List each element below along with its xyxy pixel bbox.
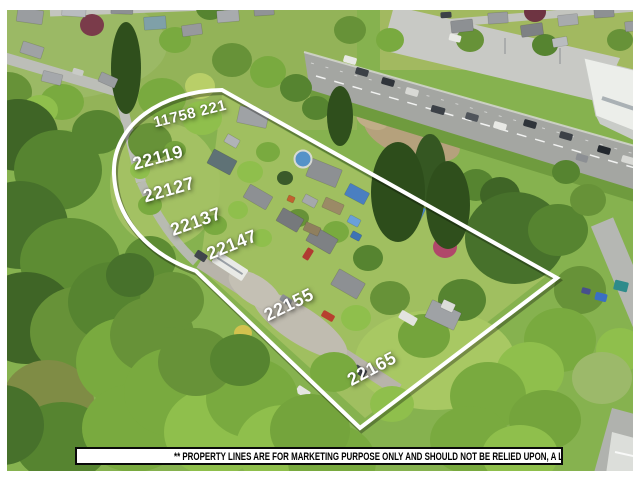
- disclaimer-text: ** PROPERTY LINES ARE FOR MARKETING PURP…: [174, 451, 563, 464]
- aerial-photo-scene: [7, 10, 633, 471]
- aerial-photo: 11758 221221192212722137221472215522165: [7, 10, 633, 471]
- disclaimer-banner: ** PROPERTY LINES ARE FOR MARKETING PURP…: [75, 447, 563, 465]
- marketing-photo: 11758 221221192212722137221472215522165 …: [0, 0, 640, 480]
